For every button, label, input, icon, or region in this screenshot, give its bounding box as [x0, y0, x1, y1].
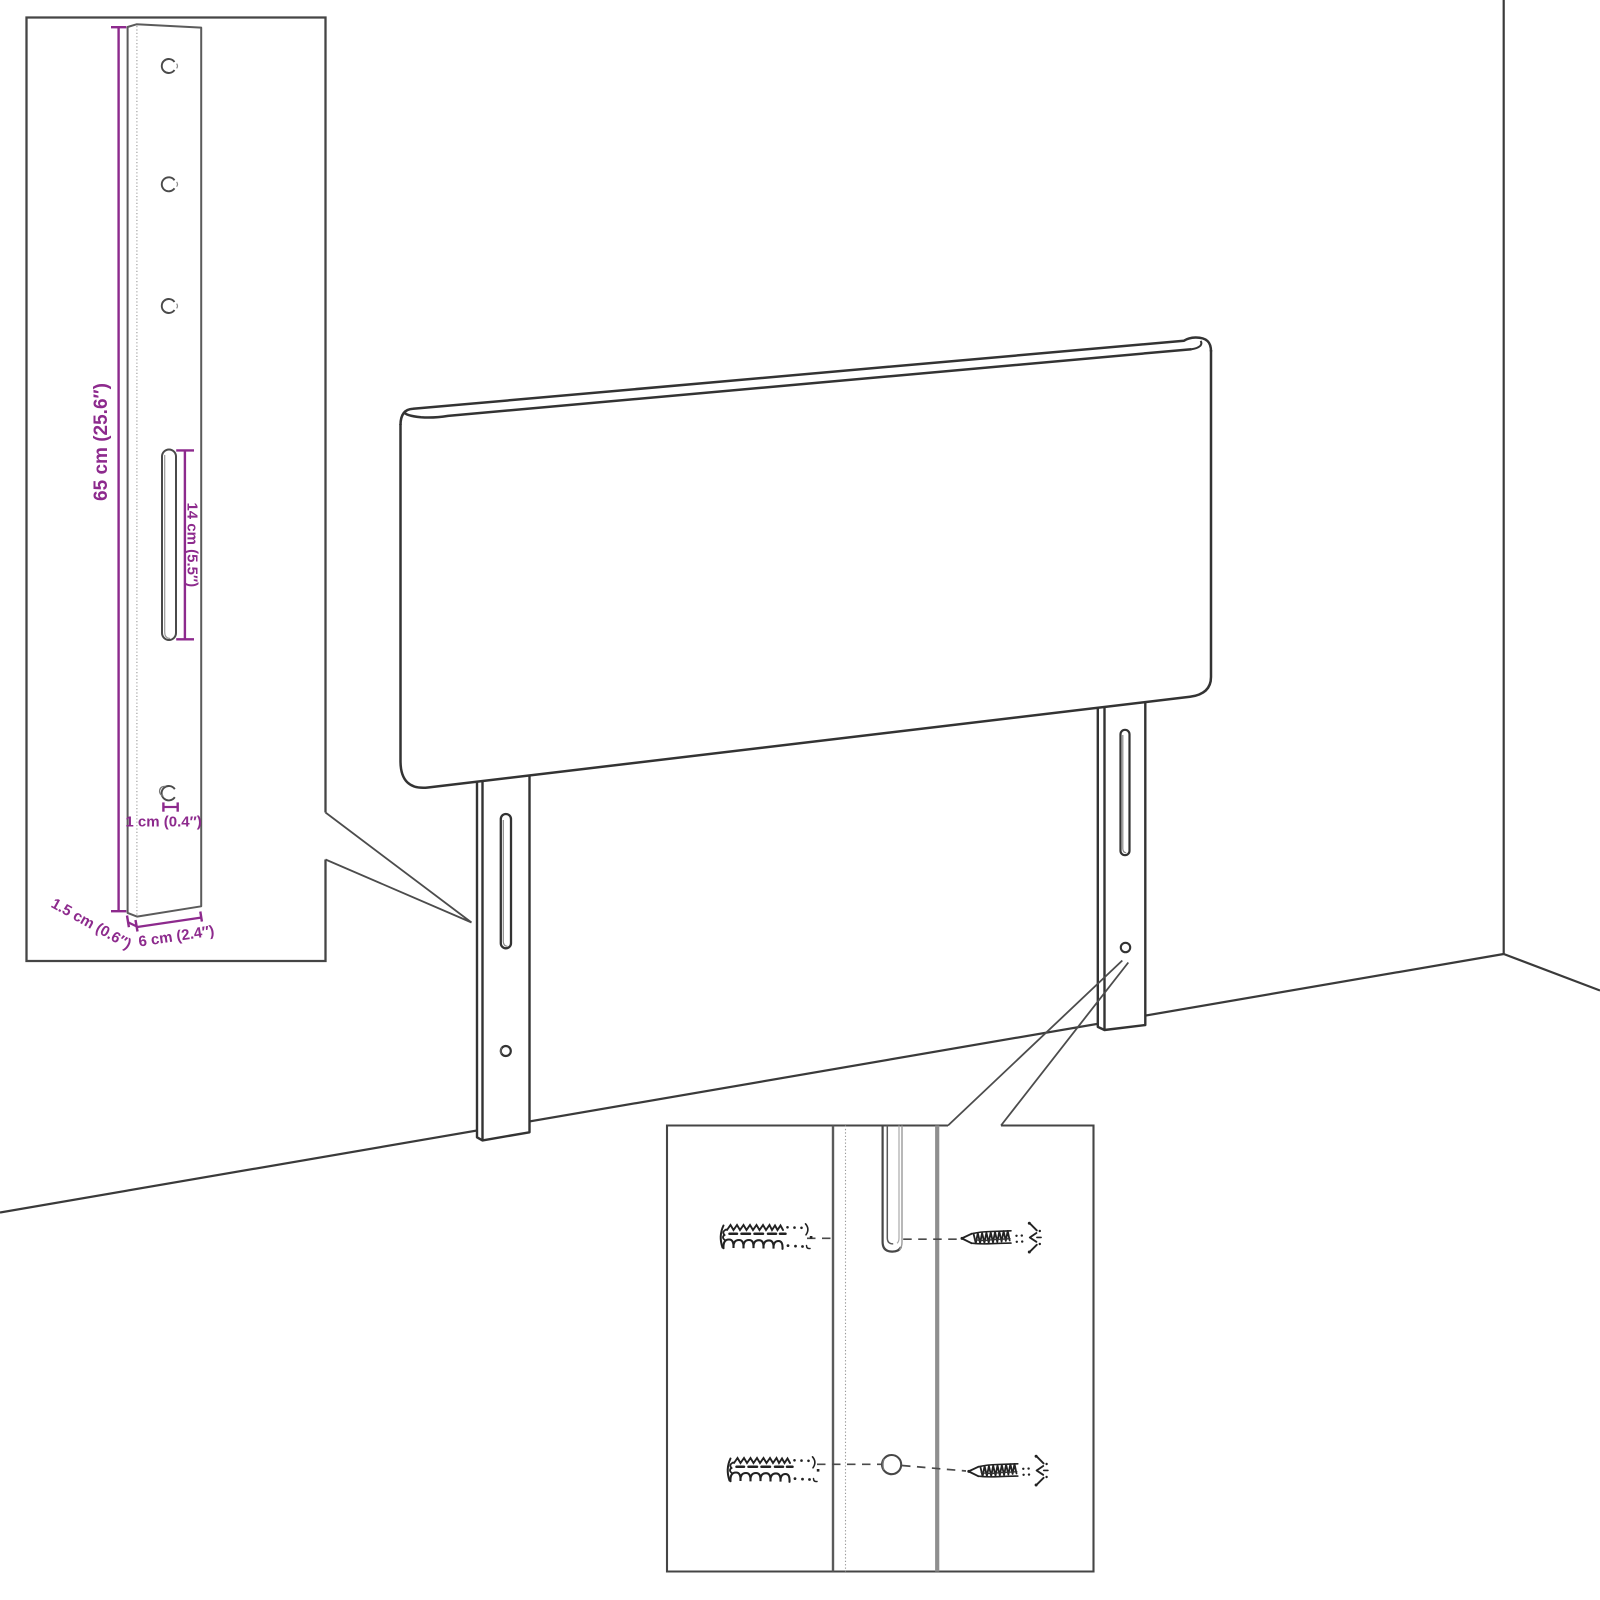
- svg-text:1 cm (0.4″): 1 cm (0.4″): [125, 814, 201, 831]
- svg-text:65 cm (25.6″): 65 cm (25.6″): [91, 383, 112, 501]
- svg-text:14 cm (5.5″): 14 cm (5.5″): [184, 502, 201, 587]
